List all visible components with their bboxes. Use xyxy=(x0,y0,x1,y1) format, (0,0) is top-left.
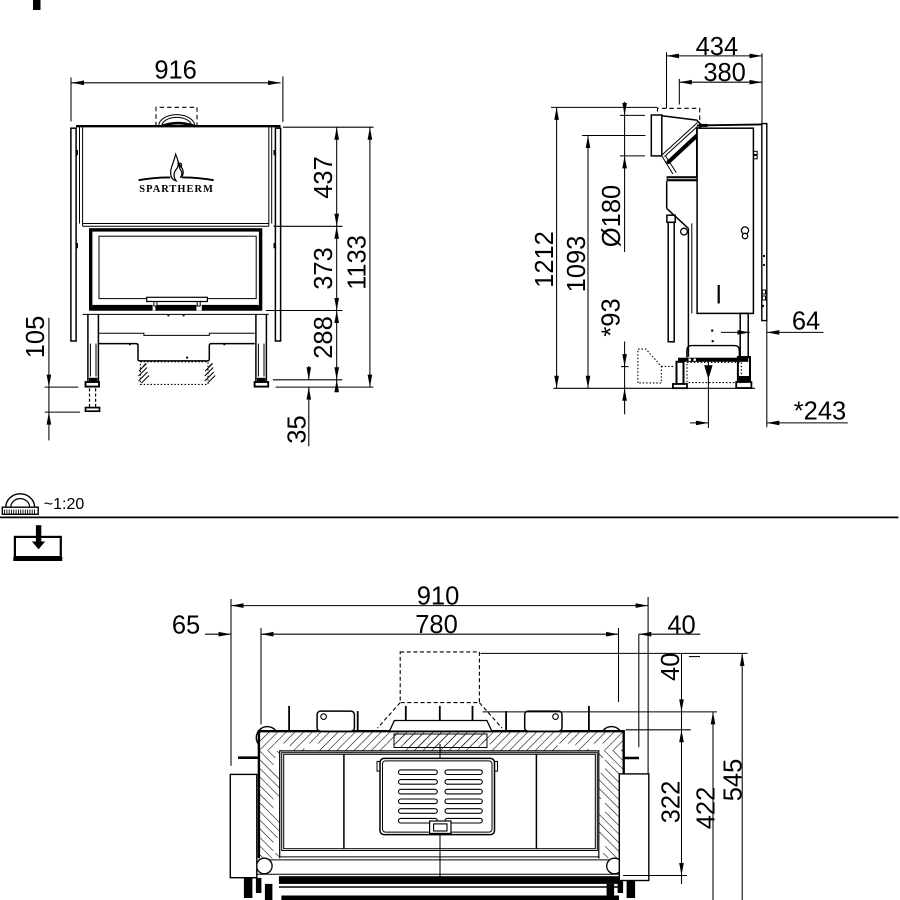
svg-text:~1:20: ~1:20 xyxy=(44,496,85,513)
svg-text:40: 40 xyxy=(657,653,685,681)
svg-text:35: 35 xyxy=(284,415,312,443)
svg-text:65: 65 xyxy=(172,611,200,639)
svg-text:434: 434 xyxy=(696,33,739,61)
svg-text:780: 780 xyxy=(415,611,458,639)
svg-text:322: 322 xyxy=(657,781,685,824)
svg-text:422: 422 xyxy=(692,787,720,830)
svg-text:916: 916 xyxy=(154,56,197,84)
svg-text:*243: *243 xyxy=(794,397,846,425)
svg-text:1133: 1133 xyxy=(344,235,372,290)
svg-text:SPARTHERM: SPARTHERM xyxy=(139,184,214,195)
svg-text:910: 910 xyxy=(417,582,460,610)
svg-text:380: 380 xyxy=(703,59,746,87)
svg-text:*93: *93 xyxy=(598,298,626,336)
svg-text:373: 373 xyxy=(310,247,338,290)
svg-text:437: 437 xyxy=(310,156,338,199)
svg-text:545: 545 xyxy=(719,759,747,802)
svg-text:105: 105 xyxy=(22,316,50,359)
svg-text:1212: 1212 xyxy=(531,231,559,288)
svg-text:288: 288 xyxy=(310,316,338,359)
svg-text:64: 64 xyxy=(792,308,820,336)
svg-text:1093: 1093 xyxy=(563,236,591,293)
svg-text:40: 40 xyxy=(667,611,695,639)
svg-text:Ø180: Ø180 xyxy=(598,185,626,247)
